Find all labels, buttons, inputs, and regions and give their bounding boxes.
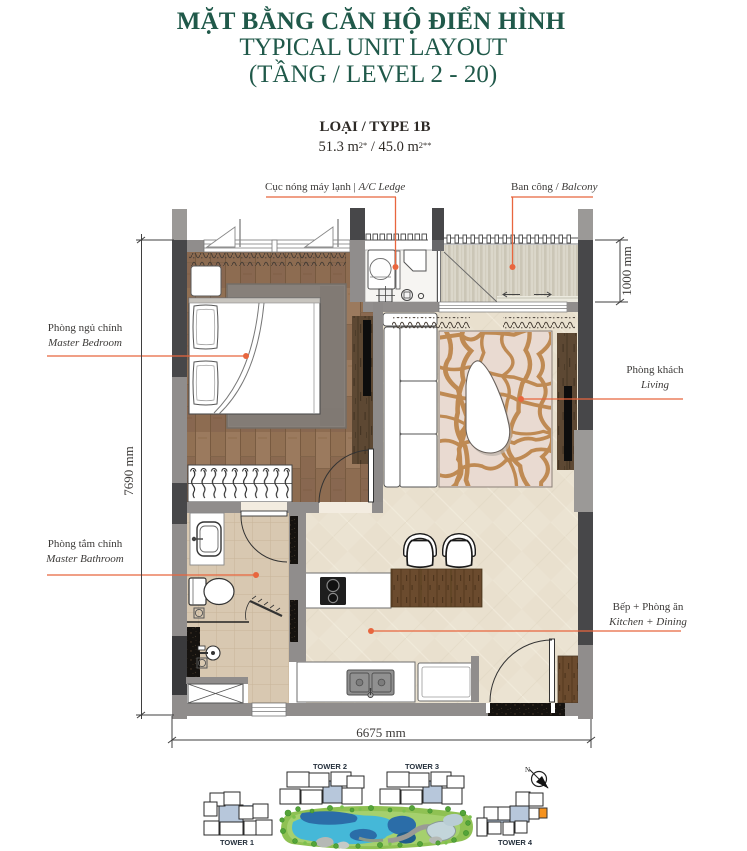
svg-text:1000 mm: 1000 mm <box>619 246 634 295</box>
svg-text:TOWER 4: TOWER 4 <box>498 838 533 847</box>
svg-text:LOẠI / TYPE 1B: LOẠI / TYPE 1B <box>320 119 431 135</box>
svg-text:Living: Living <box>640 379 670 391</box>
svg-text:TOWER 3: TOWER 3 <box>405 762 439 771</box>
svg-text:N: N <box>525 766 530 774</box>
svg-text:(TẦNG / LEVEL 2 - 20): (TẦNG / LEVEL 2 - 20) <box>249 59 497 88</box>
svg-text:TOWER 2: TOWER 2 <box>313 762 347 771</box>
svg-text:Phòng tắm chính: Phòng tắm chính <box>48 538 123 550</box>
svg-text:Cục nóng máy lạnh | A/C Ledge: Cục nóng máy lạnh | A/C Ledge <box>265 181 405 193</box>
svg-text:MẶT BẰNG CĂN HỘ ĐIỂN HÌNH: MẶT BẰNG CĂN HỘ ĐIỂN HÌNH <box>177 6 566 35</box>
svg-text:6675 mm: 6675 mm <box>356 725 405 740</box>
svg-text:Phòng khách: Phòng khách <box>626 364 684 376</box>
svg-text:7690 mm: 7690 mm <box>121 446 136 495</box>
svg-text:Master Bedroom: Master Bedroom <box>47 337 122 349</box>
svg-text:Ban công / Balcony: Ban công / Balcony <box>511 181 598 193</box>
svg-text:Phòng ngủ chính: Phòng ngủ chính <box>48 322 123 334</box>
svg-text:TOWER 1: TOWER 1 <box>220 838 254 847</box>
svg-text:Kitchen + Dining: Kitchen + Dining <box>608 616 687 628</box>
svg-text:Bếp + Phòng ăn: Bếp + Phòng ăn <box>613 601 684 613</box>
svg-text:Master Bathroom: Master Bathroom <box>45 553 124 565</box>
svg-text:TYPICAL UNIT LAYOUT: TYPICAL UNIT LAYOUT <box>239 34 507 61</box>
svg-text:51.3 m2* / 45.0 m2**: 51.3 m2* / 45.0 m2** <box>318 139 431 155</box>
